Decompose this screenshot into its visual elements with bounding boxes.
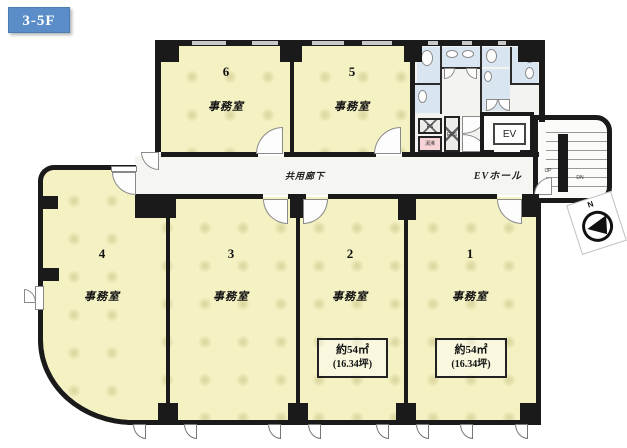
toilet-icon	[486, 49, 497, 63]
pipe-space-box: PS	[418, 118, 442, 134]
wall-segment	[402, 152, 539, 157]
room-3-number: 3	[186, 246, 276, 262]
window-segment	[362, 41, 392, 45]
wall-room4-room3	[166, 197, 170, 425]
window-segment	[35, 286, 44, 310]
wall-pier	[43, 268, 59, 281]
stair-step	[546, 141, 607, 142]
partition-wall	[510, 47, 512, 85]
room-1-label: 事務室	[420, 288, 520, 304]
sink-icon	[446, 50, 458, 58]
pillar	[398, 194, 416, 220]
room-1-number: 1	[425, 246, 515, 262]
stair-handrail	[558, 134, 568, 192]
pillar	[522, 197, 536, 217]
window-vent	[460, 424, 473, 439]
window-vent	[268, 424, 281, 439]
toilet-icon	[421, 50, 433, 66]
stairs-down-label: DN	[572, 176, 588, 181]
room-2-area-box: 約54㎡ (16.34坪)	[317, 338, 388, 378]
lower-rooms-floor	[136, 197, 541, 425]
compass-needle-icon	[584, 213, 612, 241]
room-2-number: 2	[305, 246, 395, 262]
kitchenette-box: 湯沸	[418, 136, 442, 152]
eps-shaft-box: EPS	[444, 116, 460, 152]
window-segment	[192, 41, 226, 45]
window-vent	[416, 424, 429, 439]
stair-step	[546, 186, 607, 187]
window-segment	[462, 41, 472, 45]
room-6-number: 6	[181, 64, 271, 80]
ev-hall-label: EVホール	[455, 167, 541, 182]
pillar	[135, 194, 161, 218]
wall-room6-room5	[290, 46, 294, 152]
partition-wall	[415, 83, 442, 85]
wall-segment	[410, 40, 415, 156]
eps-label: EPS	[446, 133, 458, 138]
window-segment	[312, 41, 344, 45]
window-segment	[252, 41, 278, 45]
floor-badge: 3-5F	[8, 7, 70, 33]
stair-step	[546, 150, 607, 151]
window-vent	[184, 424, 197, 439]
window-segment	[498, 41, 506, 45]
compass-circle	[578, 207, 617, 246]
window-segment	[428, 41, 438, 45]
floorplan-canvas: 3-5F PS 湯沸 EPS EV	[0, 0, 627, 448]
pillar	[520, 403, 536, 421]
pillar	[288, 403, 308, 421]
wall-segment	[161, 152, 258, 157]
kitchenette-label: 湯沸	[420, 142, 440, 147]
room-1-area-m2: 約54㎡	[437, 343, 505, 358]
pipe-space-label: PS	[420, 125, 440, 130]
wall-segment	[155, 40, 161, 152]
partition-wall	[510, 83, 539, 85]
elevator-label: EV	[493, 123, 526, 145]
wall-segment	[284, 152, 376, 157]
window-vent	[133, 424, 146, 439]
urinal-icon	[484, 71, 492, 82]
room-2-label: 事務室	[300, 288, 400, 304]
partition-wall	[480, 46, 482, 112]
room-1-area-box: 約54㎡ (16.34坪)	[435, 338, 507, 378]
stair-step	[546, 132, 607, 133]
window-vent	[515, 424, 528, 439]
room-2-area-m2: 約54㎡	[319, 343, 386, 358]
window-vent	[376, 424, 389, 439]
room-4-number: 4	[57, 246, 147, 262]
partition-wall	[440, 46, 442, 114]
sink-icon	[418, 90, 427, 103]
pillar	[158, 403, 178, 421]
pillar	[396, 403, 416, 421]
wall-segment	[539, 40, 545, 122]
sink-icon	[462, 50, 474, 58]
wall-room2-room1	[404, 197, 408, 425]
pillar	[160, 194, 176, 218]
stair-step	[546, 159, 607, 160]
room-3-label: 事務室	[181, 288, 281, 304]
room-5-label: 事務室	[302, 98, 402, 114]
stairs-up-label: UP	[540, 169, 556, 174]
window-vent	[308, 424, 321, 439]
toilet-icon	[525, 67, 534, 79]
room-4-label: 事務室	[52, 288, 152, 304]
room-5-number: 5	[307, 64, 397, 80]
room-6-label: 事務室	[176, 98, 276, 114]
corridor-label: 共用廊下	[255, 169, 355, 182]
room-2-area-tsubo: (16.34坪)	[319, 358, 386, 371]
wall-pier	[43, 196, 58, 209]
wall-room3-room2	[296, 197, 300, 425]
room-1-area-tsubo: (16.34坪)	[437, 358, 505, 371]
